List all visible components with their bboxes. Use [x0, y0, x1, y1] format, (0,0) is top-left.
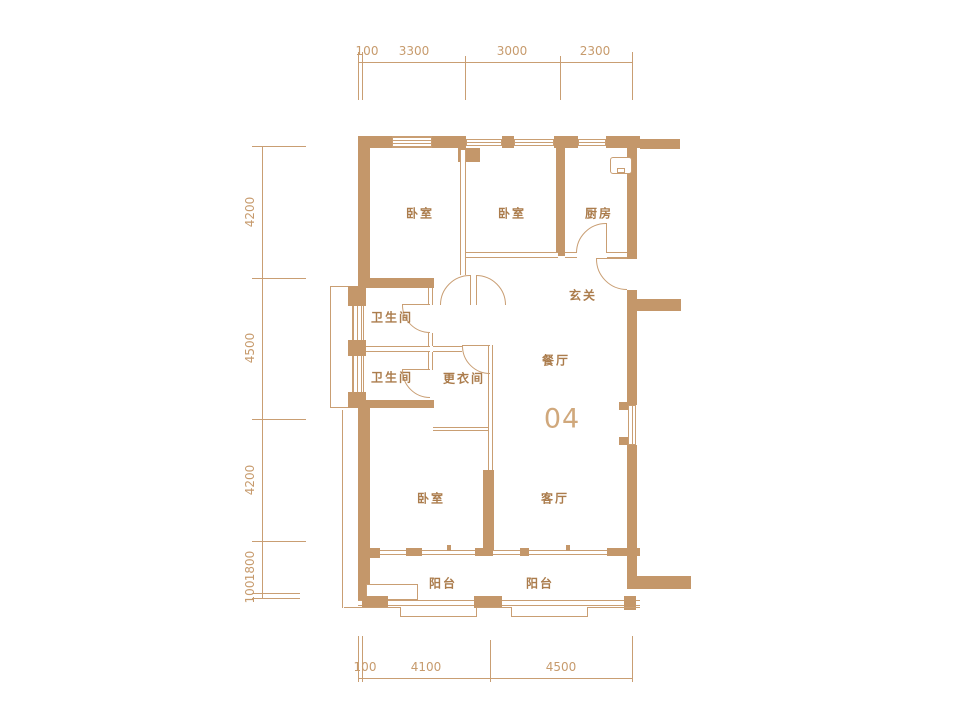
dim-tick: [632, 636, 633, 682]
door-leaf: [470, 275, 471, 305]
dim-label: 100: [243, 581, 257, 604]
dim-tick: [465, 56, 466, 100]
room-label-dressing: 更衣间: [443, 370, 485, 387]
dim-tick: [252, 541, 306, 542]
sliding-door-tab: [566, 545, 570, 551]
partition-wall: [433, 427, 488, 431]
wall-segment: [617, 548, 640, 556]
room-label-bath-1: 卫生间: [371, 309, 413, 326]
wall-segment: [627, 445, 637, 576]
wall-segment: [348, 340, 366, 356]
dim-tick: [560, 56, 561, 100]
partition-wall: [428, 352, 433, 370]
dim-tick: [252, 146, 306, 147]
wall-segment: [556, 146, 565, 256]
door-arc: [440, 275, 470, 305]
dim-label: 3000: [497, 44, 528, 58]
dim-tick: [358, 52, 359, 100]
outer-line: [344, 607, 401, 608]
outer-line: [511, 616, 588, 617]
window: [380, 550, 406, 555]
wall-segment: [406, 548, 422, 556]
window: [392, 136, 432, 148]
dim-label: 100: [354, 660, 377, 674]
dim-tick: [362, 52, 363, 100]
outer-line: [476, 607, 477, 617]
outer-line: [587, 607, 640, 608]
room-label-bedroom-3: 卧室: [417, 490, 445, 507]
wall-segment: [358, 136, 392, 148]
room-label-kitchen: 厨房: [585, 205, 613, 222]
dim-line: [262, 146, 263, 599]
wall-segment: [358, 148, 370, 286]
wall-segment: [607, 548, 617, 556]
room-label-bath-2: 卫生间: [371, 369, 413, 386]
unit-number: 04: [544, 404, 580, 435]
dim-label: 4200: [243, 197, 257, 228]
outer-line: [476, 607, 512, 608]
dim-label: 4200: [243, 465, 257, 496]
dim-tick: [252, 278, 306, 279]
wall-segment: [502, 136, 514, 148]
floor-plan: 100 3300 3000 2300 4200 4500 4200 1800 1…: [0, 0, 960, 720]
room-label-bedroom-1: 卧室: [406, 205, 434, 222]
door-leaf: [462, 345, 490, 346]
wall-segment: [358, 408, 370, 556]
sliding-door-tab: [447, 545, 451, 551]
room-label-entry: 玄关: [569, 287, 597, 304]
door-arc: [576, 223, 606, 253]
wall-segment: [637, 299, 681, 311]
dim-label: 4500: [546, 660, 577, 674]
window: [514, 139, 554, 146]
wall-segment: [348, 286, 366, 306]
dim-tick: [358, 636, 359, 682]
outer-line: [342, 410, 343, 608]
wall-segment: [475, 548, 493, 556]
partition-wall: [433, 346, 462, 352]
room-label-balcony-2: 阳台: [526, 575, 554, 592]
dim-line: [358, 678, 633, 679]
dim-tick: [252, 419, 306, 420]
partition-wall: [428, 333, 433, 346]
window: [628, 405, 636, 445]
room-label-balcony-1: 阳台: [429, 575, 457, 592]
door-arc: [596, 259, 627, 290]
wall-segment: [627, 576, 691, 589]
dim-tick: [632, 52, 633, 100]
dim-tick: [252, 593, 300, 594]
wall-segment: [640, 139, 680, 149]
door-leaf: [476, 275, 477, 305]
outer-line: [587, 607, 588, 617]
dim-label: 3300: [399, 44, 430, 58]
dim-label: 2300: [580, 44, 611, 58]
door-leaf: [596, 258, 627, 259]
wall-segment: [619, 402, 628, 410]
room-label-bedroom-2: 卧室: [498, 205, 526, 222]
window: [578, 139, 606, 146]
dim-line: [358, 62, 633, 63]
partition-wall: [466, 252, 558, 258]
outer-line: [400, 616, 477, 617]
window: [493, 550, 520, 555]
dim-tick: [252, 598, 300, 599]
dim-tick: [490, 640, 491, 682]
dim-label: 4100: [411, 660, 442, 674]
wall-segment: [432, 136, 466, 148]
dim-label: 100: [356, 44, 379, 58]
wall-segment: [520, 548, 529, 556]
dim-label: 4500: [243, 333, 257, 364]
door-leaf: [402, 304, 430, 305]
room-label-living: 客厅: [541, 490, 569, 507]
wall-segment: [358, 400, 434, 408]
wall-segment: [358, 278, 434, 288]
kitchen-flue-icon: [617, 168, 625, 173]
wall-segment: [627, 290, 637, 405]
partition-wall: [428, 288, 433, 305]
window: [466, 139, 502, 146]
dim-label: 1800: [243, 551, 257, 582]
wall-segment: [483, 470, 494, 552]
partition-wall: [366, 346, 430, 352]
door-arc: [476, 275, 506, 305]
room-label-dining: 餐厅: [542, 352, 570, 369]
door-leaf: [606, 223, 607, 253]
dim-tick: [362, 636, 363, 682]
wall-segment: [619, 437, 628, 445]
